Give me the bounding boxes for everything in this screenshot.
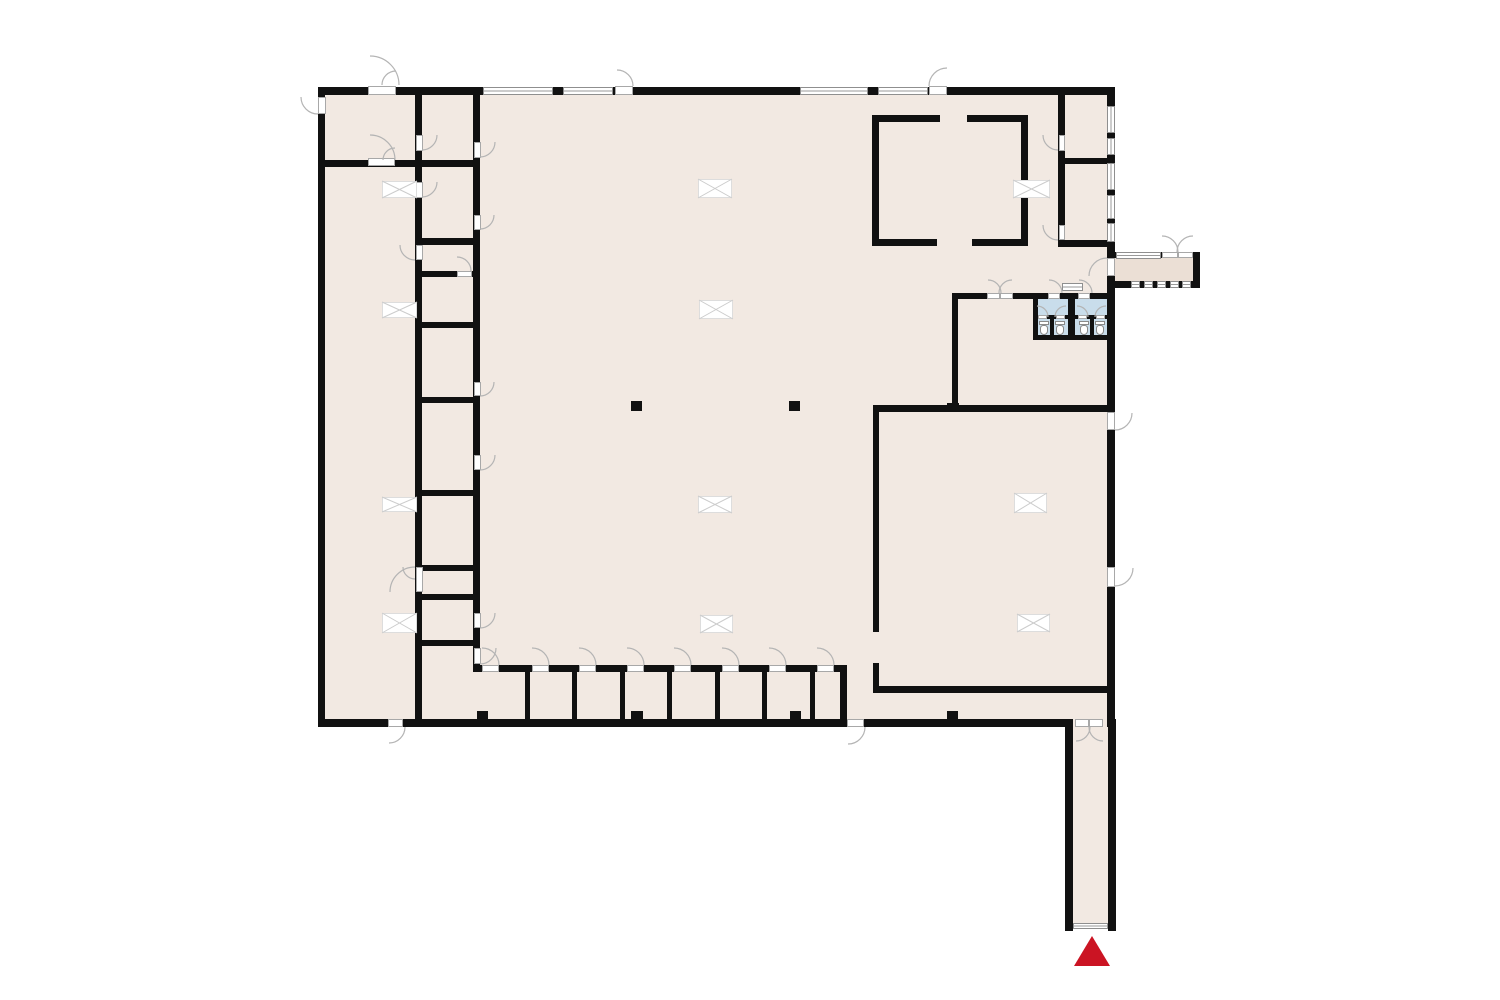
- door-leaf: [769, 665, 786, 672]
- roof-hatch: [698, 179, 732, 198]
- door-leaf: [1056, 315, 1065, 319]
- window: [1107, 138, 1115, 155]
- roof-hatch: [382, 613, 417, 633]
- wall: [1090, 317, 1094, 335]
- door-leaf: [1059, 225, 1065, 240]
- wall: [422, 397, 473, 403]
- wall: [972, 239, 1028, 246]
- toilet: [1095, 321, 1105, 335]
- wall: [525, 672, 530, 719]
- window: [1062, 283, 1083, 291]
- wall: [473, 87, 480, 672]
- wall: [422, 640, 473, 646]
- roof-hatch: [382, 497, 417, 512]
- window: [563, 87, 613, 95]
- window: [1157, 281, 1166, 288]
- wall: [872, 115, 879, 246]
- door-swing-arc: [848, 727, 865, 744]
- wall: [422, 160, 473, 167]
- door-leaf: [318, 97, 326, 114]
- door-leaf: [627, 665, 644, 672]
- door-leaf: [1107, 258, 1115, 276]
- door-leaf: [1096, 315, 1105, 319]
- toilet: [1039, 321, 1049, 335]
- door-leaf: [416, 245, 423, 260]
- door-leaf: [474, 382, 481, 396]
- roof-hatch: [698, 496, 732, 513]
- window: [1107, 106, 1115, 133]
- door-leaf: [1048, 293, 1060, 299]
- door-leaf: [416, 567, 423, 592]
- wall: [572, 672, 577, 719]
- wall: [873, 686, 1115, 693]
- door-swing-arc: [370, 56, 399, 85]
- door-leaf: [817, 665, 834, 672]
- toilet: [1079, 321, 1089, 335]
- toilet-bowl: [1056, 325, 1064, 335]
- wall: [873, 405, 1115, 412]
- door-swing-arc: [617, 70, 633, 86]
- door-leaf: [579, 665, 596, 672]
- door-leaf: [474, 215, 481, 230]
- toilet-bowl: [1080, 325, 1088, 335]
- door-leaf: [416, 182, 423, 198]
- wall: [422, 490, 473, 496]
- wall: [422, 594, 473, 600]
- toilet-bowl: [1096, 325, 1104, 335]
- wall: [1050, 317, 1054, 335]
- wall: [873, 405, 879, 632]
- window: [483, 87, 553, 95]
- wall: [631, 401, 642, 411]
- door-swing-arc: [301, 97, 318, 114]
- door-leaf: [474, 455, 481, 470]
- door-swing-arc: [1177, 236, 1193, 252]
- door-swing-arc: [389, 727, 405, 743]
- wall: [1065, 719, 1073, 931]
- door-leaf: [1178, 252, 1193, 258]
- roof-hatch: [1013, 180, 1050, 198]
- roof-hatch: [382, 302, 417, 318]
- wall: [422, 322, 473, 328]
- toilet-bowl: [1040, 325, 1048, 335]
- floor-plan: [0, 0, 1500, 1000]
- door-swing-arc: [1162, 236, 1178, 252]
- window: [1116, 252, 1161, 259]
- wall: [631, 711, 643, 720]
- roof-hatch: [699, 300, 733, 319]
- window: [878, 87, 928, 95]
- wall: [1058, 95, 1065, 246]
- wall: [422, 238, 473, 245]
- wall: [318, 87, 325, 727]
- wall: [790, 711, 801, 720]
- wall: [715, 672, 720, 719]
- window: [1182, 281, 1191, 288]
- wall: [620, 672, 625, 719]
- door-leaf: [1162, 252, 1178, 258]
- roof-hatch: [382, 181, 417, 198]
- door-leaf: [1000, 293, 1013, 299]
- window: [1131, 281, 1140, 288]
- wall: [872, 239, 937, 246]
- door-leaf: [1038, 315, 1047, 319]
- wall: [840, 665, 847, 722]
- door-swing-arc: [382, 71, 396, 85]
- wall: [477, 711, 488, 720]
- door-leaf: [532, 665, 549, 672]
- door-leaf: [474, 613, 481, 628]
- wall: [762, 672, 767, 719]
- door-leaf: [482, 665, 499, 672]
- window: [1107, 195, 1115, 219]
- door-leaf: [388, 719, 403, 727]
- window: [1170, 281, 1179, 288]
- door-leaf: [674, 665, 691, 672]
- wall: [952, 293, 958, 411]
- wall: [318, 87, 1115, 95]
- door-swing-arc: [1115, 568, 1133, 586]
- door-leaf: [1078, 315, 1087, 319]
- door-leaf: [929, 86, 947, 95]
- door-leaf: [615, 86, 633, 95]
- toilet: [1055, 321, 1065, 335]
- door-leaf: [1075, 719, 1089, 727]
- wall: [872, 115, 940, 122]
- door-leaf: [474, 648, 481, 664]
- roof-hatch: [1017, 614, 1050, 632]
- door-leaf: [1107, 567, 1115, 587]
- door-swing-arc: [929, 68, 947, 86]
- wall: [789, 401, 800, 411]
- wall: [422, 565, 473, 571]
- wall: [947, 403, 959, 412]
- door-leaf: [722, 665, 739, 672]
- wall: [1068, 293, 1075, 340]
- door-leaf: [1107, 412, 1115, 430]
- door-leaf: [416, 135, 423, 151]
- window: [1107, 223, 1115, 242]
- door-leaf: [1078, 293, 1090, 299]
- door-leaf: [474, 142, 481, 158]
- wall: [1108, 719, 1116, 931]
- door-leaf: [847, 719, 864, 727]
- wall: [967, 115, 1028, 122]
- window: [1144, 281, 1153, 288]
- door-leaf: [1089, 719, 1103, 727]
- door-leaf: [368, 158, 395, 166]
- roof-hatch: [1014, 493, 1047, 513]
- door-leaf: [1059, 135, 1065, 151]
- door-leaf: [987, 293, 1000, 299]
- door-swing-arc: [1115, 413, 1132, 430]
- door-leaf: [457, 271, 472, 277]
- door-leaf: [368, 86, 396, 95]
- entrance-marker: [1074, 936, 1110, 966]
- wall: [810, 672, 815, 719]
- wall: [1033, 335, 1112, 340]
- window: [800, 87, 868, 95]
- window: [1107, 163, 1115, 190]
- wall: [947, 711, 958, 720]
- wall: [667, 672, 672, 719]
- window: [1073, 923, 1108, 929]
- roof-hatch: [700, 615, 733, 633]
- wall: [318, 719, 1072, 727]
